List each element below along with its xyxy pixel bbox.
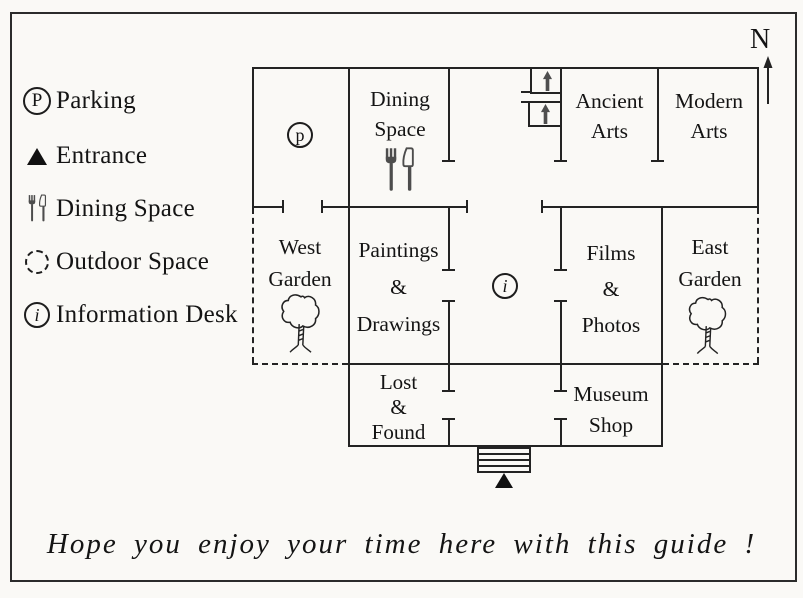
museum-guide-page: P Parking Entrance Dining Space Outdoor …: [0, 0, 803, 598]
wall-col2-b: [448, 206, 450, 271]
room-ancient-arts: Ancient Arts: [563, 86, 656, 146]
fork-knife-icon: [18, 194, 56, 223]
room-label: Modern: [662, 86, 756, 116]
room-label: East: [664, 231, 756, 263]
wall-col4: [661, 206, 663, 447]
room-label: Garden: [664, 263, 756, 295]
room-label: &: [350, 269, 447, 306]
room-label: Museum: [562, 379, 660, 410]
entrance-steps-icon: [477, 447, 531, 473]
room-east-garden: East Garden: [664, 231, 756, 295]
legend-item-outdoor: Outdoor Space: [18, 248, 209, 276]
entrance-triangle-icon: [18, 148, 56, 165]
door-tick: [442, 160, 455, 162]
room-label: Space: [352, 114, 448, 144]
legend-label-dining: Dining Space: [56, 195, 195, 223]
door-tick: [466, 200, 468, 213]
room-museum-shop: Museum Shop: [562, 379, 660, 441]
room-label: Films: [562, 235, 660, 271]
room-label: Arts: [563, 116, 656, 146]
wall-mid-b: [322, 206, 468, 208]
wall-right: [757, 67, 759, 208]
wall-col2-d: [448, 420, 450, 447]
room-paintings-drawings: Paintings & Drawings: [350, 232, 447, 343]
information-symbol: i: [24, 302, 50, 328]
tree-icon: [281, 292, 321, 358]
wall-col2-a: [448, 67, 450, 162]
wall-arts-divider: [657, 67, 659, 162]
room-label: &: [562, 271, 660, 307]
parking-symbol: P: [23, 87, 51, 115]
room-label: Paintings: [350, 232, 447, 269]
west-garden-dashed-bottom: [252, 363, 348, 365]
wall-lower: [348, 363, 663, 365]
legend-label-outdoor: Outdoor Space: [56, 248, 209, 276]
door-tick: [282, 200, 284, 213]
outdoor-dashed-circle-icon: [18, 250, 56, 274]
door-tick: [321, 200, 323, 213]
room-modern-arts: Modern Arts: [662, 86, 756, 146]
legend-item-information: i Information Desk: [18, 301, 238, 329]
door-tick: [554, 160, 567, 162]
door-tick: [651, 160, 664, 162]
room-label: Photos: [562, 307, 660, 343]
room-label: Arts: [662, 116, 756, 146]
north-arrow-icon: [760, 56, 776, 106]
wall-col2-c: [448, 301, 450, 392]
legend-item-dining: Dining Space: [18, 194, 195, 223]
room-label: Shop: [562, 410, 660, 441]
wall-mid-a: [252, 206, 283, 208]
fork-knife-icon: [383, 147, 417, 193]
compass-north-label: N: [750, 24, 770, 56]
information-circle-icon: i: [18, 302, 56, 328]
entrance-triangle-icon: [495, 473, 513, 488]
footer-message: Hope you enjoy your time here with this …: [12, 528, 791, 561]
room-label: &: [350, 395, 447, 420]
east-garden-dashed-right: [757, 208, 759, 363]
east-garden-dashed-bottom: [663, 363, 759, 365]
stairs-icon: [530, 69, 562, 94]
map-information-symbol: i: [492, 273, 518, 299]
parking-circle-icon: P: [18, 87, 56, 115]
room-label: Drawings: [350, 306, 447, 343]
wall-mid-c: [542, 206, 759, 208]
legend-label-entrance: Entrance: [56, 142, 147, 170]
legend-label-parking: Parking: [56, 87, 136, 115]
room-label: Dining: [352, 84, 448, 114]
legend-item-entrance: Entrance: [18, 142, 147, 170]
door-tick: [541, 200, 543, 213]
tree-icon: [688, 296, 728, 358]
legend-label-information: Information Desk: [56, 301, 238, 329]
room-label: Ancient: [563, 86, 656, 116]
room-label: Lost: [350, 370, 447, 395]
room-west-garden: West Garden: [253, 231, 347, 295]
room-label: West: [253, 231, 347, 263]
legend-item-parking: P Parking: [18, 87, 136, 115]
room-dining-space: Dining Space: [352, 84, 448, 144]
map-parking-symbol: p: [287, 122, 313, 148]
wall-top: [252, 67, 759, 69]
room-films-photos: Films & Photos: [562, 235, 660, 343]
room-label: Found: [350, 420, 447, 445]
stairs-icon: [528, 101, 562, 127]
wall-left: [252, 67, 254, 208]
room-lost-found: Lost & Found: [350, 370, 447, 445]
room-label: Garden: [253, 263, 347, 295]
